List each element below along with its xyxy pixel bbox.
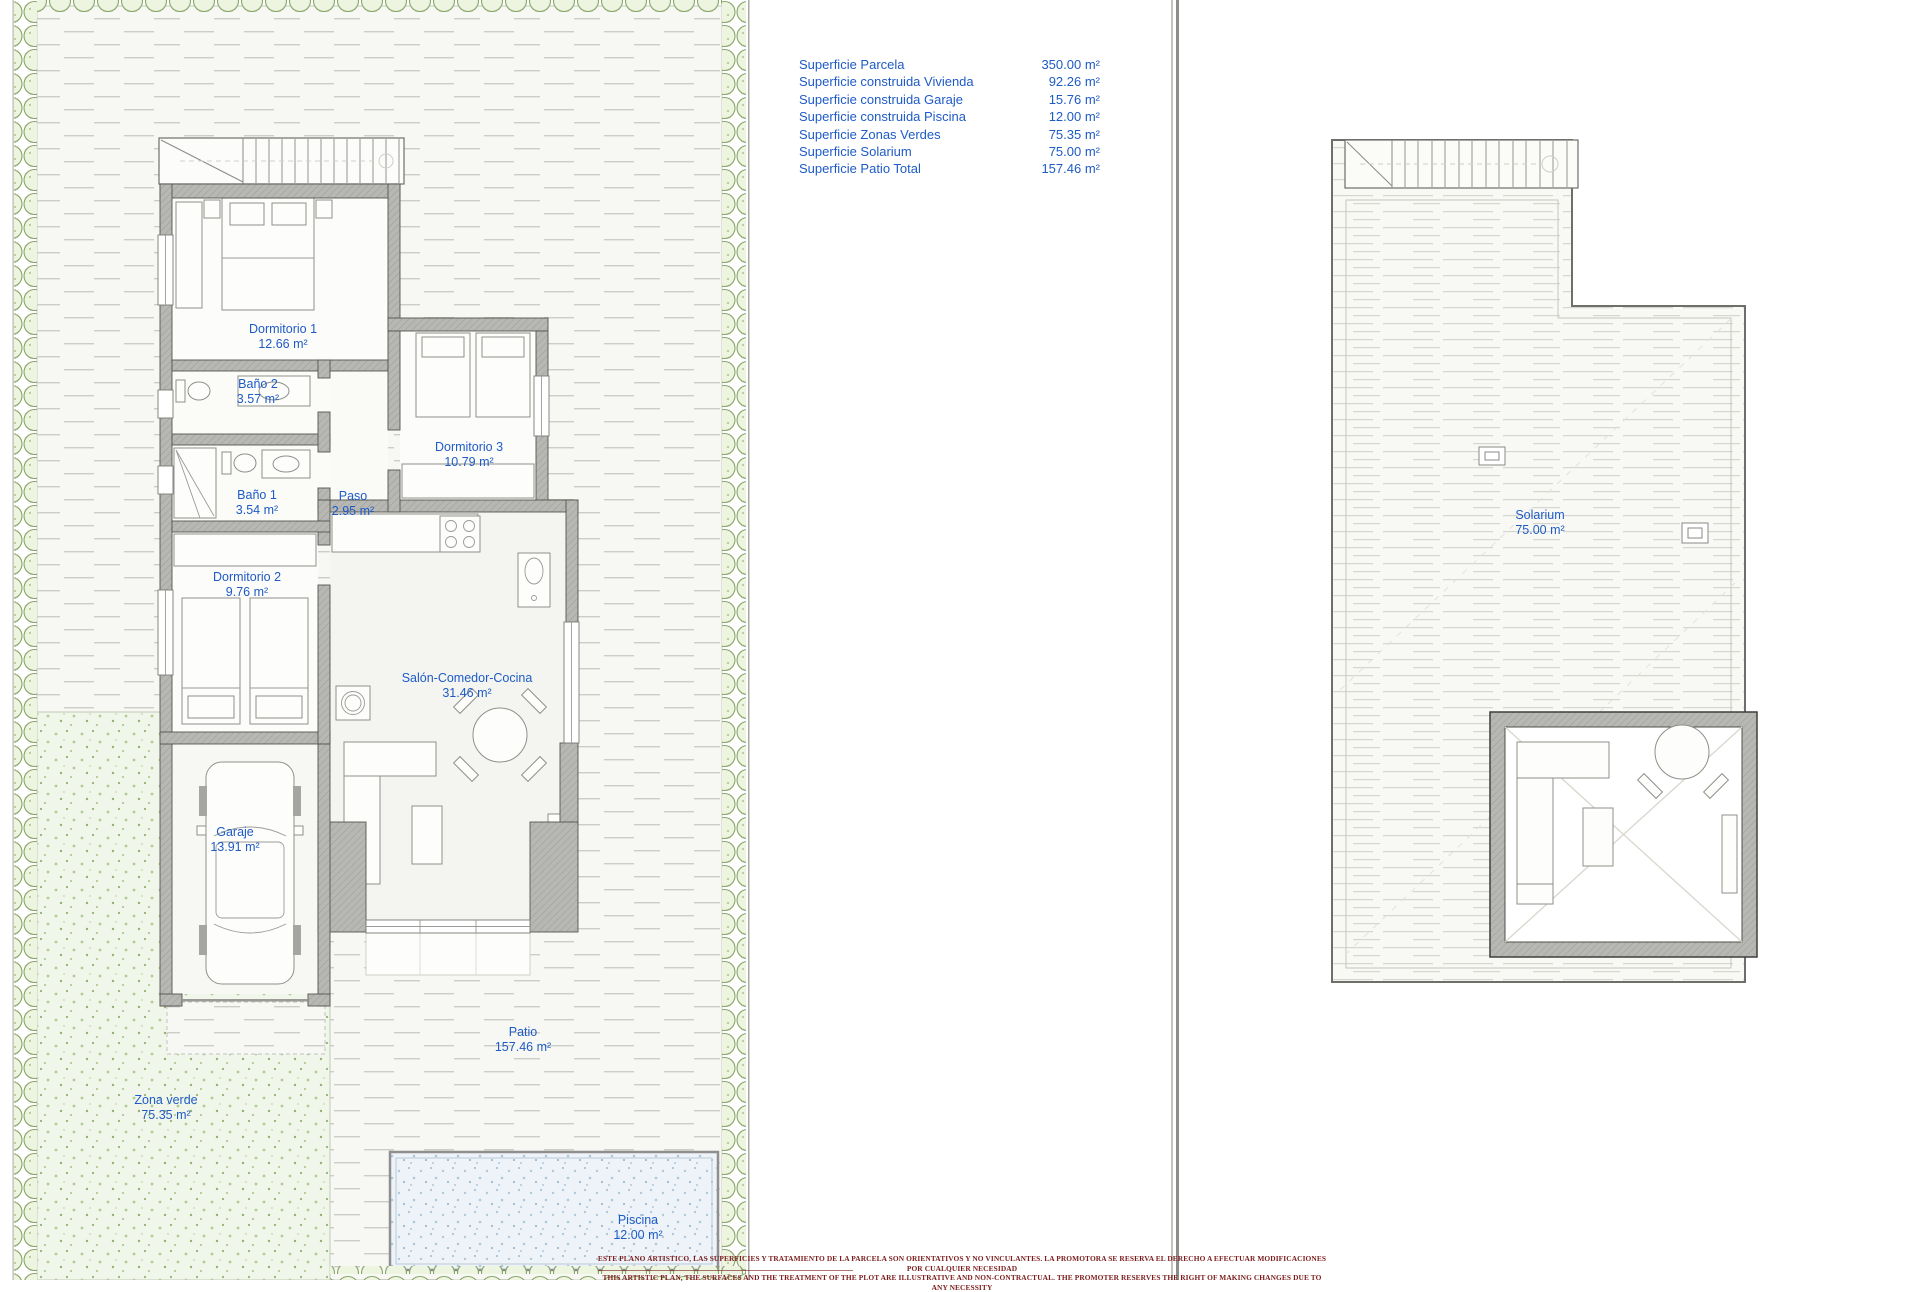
room-label-patio: Patio157.46 m² <box>495 1025 551 1055</box>
legend-row: Superficie Solarium75.00 m² <box>799 143 1100 160</box>
roof-vent-1 <box>1479 447 1505 465</box>
furniture-dormitorio3 <box>402 333 534 498</box>
plot-boundary-line <box>598 1270 853 1271</box>
hedge-left <box>14 0 37 1280</box>
floor-paso <box>330 371 388 500</box>
plot-right-boundary <box>748 0 750 1280</box>
furniture-dormitorio1 <box>176 198 332 310</box>
hedge-right <box>722 0 746 1280</box>
room-label-bano-1: Baño 13.54 m² <box>236 488 278 518</box>
pool <box>390 1152 718 1270</box>
legend-row: Superficie construida Vivienda92.26 m² <box>799 73 1100 90</box>
sheet-divider <box>1171 0 1179 1280</box>
roof-access-room <box>1490 712 1757 957</box>
room-label-solarium: Solarium75.00 m² <box>1515 508 1564 538</box>
garage-door <box>182 999 308 1002</box>
plan-drawing <box>0 0 1920 1280</box>
room-label-dormitorio-3: Dormitorio 310.79 m² <box>435 440 503 470</box>
garage-car <box>197 762 303 984</box>
legend-row: Superficie construida Piscina12.00 m² <box>799 108 1100 125</box>
roof-plan <box>1332 140 1757 982</box>
ground-floor-plan <box>13 0 750 1280</box>
legend-row: Superficie construida Garaje15.76 m² <box>799 91 1100 108</box>
hedge-top <box>37 0 722 12</box>
disclaimer-text: ESTE PLANO ARTISTICO, LAS SUPERFICIES Y … <box>597 1254 1327 1292</box>
porch <box>366 933 530 975</box>
legend-row: Superficie Zonas Verdes75.35 m² <box>799 126 1100 143</box>
room-label-salon: Salón-Comedor-Cocina31.46 m² <box>402 671 533 701</box>
legend-row: Superficie Patio Total157.46 m² <box>799 160 1100 177</box>
driveway <box>167 1002 325 1054</box>
exterior-stairs-roof <box>1345 140 1578 188</box>
roof-vent-2 <box>1682 523 1708 543</box>
area-legend: Superficie Parcela350.00 m² Superficie c… <box>799 56 1100 178</box>
floorplan-page: { "legend": { "rows": [ {"label":"Superf… <box>0 0 1920 1280</box>
exterior-stairs-ground <box>159 138 404 184</box>
plot-left-boundary <box>13 0 14 1280</box>
room-label-zona-verde: Zona verde75.35 m² <box>134 1093 197 1123</box>
disclaimer-line-en: THIS ARTISTIC PLAN, THE SURFACES AND THE… <box>597 1273 1327 1292</box>
room-label-bano-2: Baño 23.57 m² <box>237 377 279 407</box>
room-label-paso: Paso2.95 m² <box>332 489 374 519</box>
room-label-piscina: Piscina12.00 m² <box>613 1213 662 1243</box>
room-label-dormitorio-1: Dormitorio 112.66 m² <box>249 322 317 352</box>
room-label-dormitorio-2: Dormitorio 29.76 m² <box>213 570 281 600</box>
room-label-garaje: Garaje13.91 m² <box>210 825 259 855</box>
legend-row: Superficie Parcela350.00 m² <box>799 56 1100 73</box>
